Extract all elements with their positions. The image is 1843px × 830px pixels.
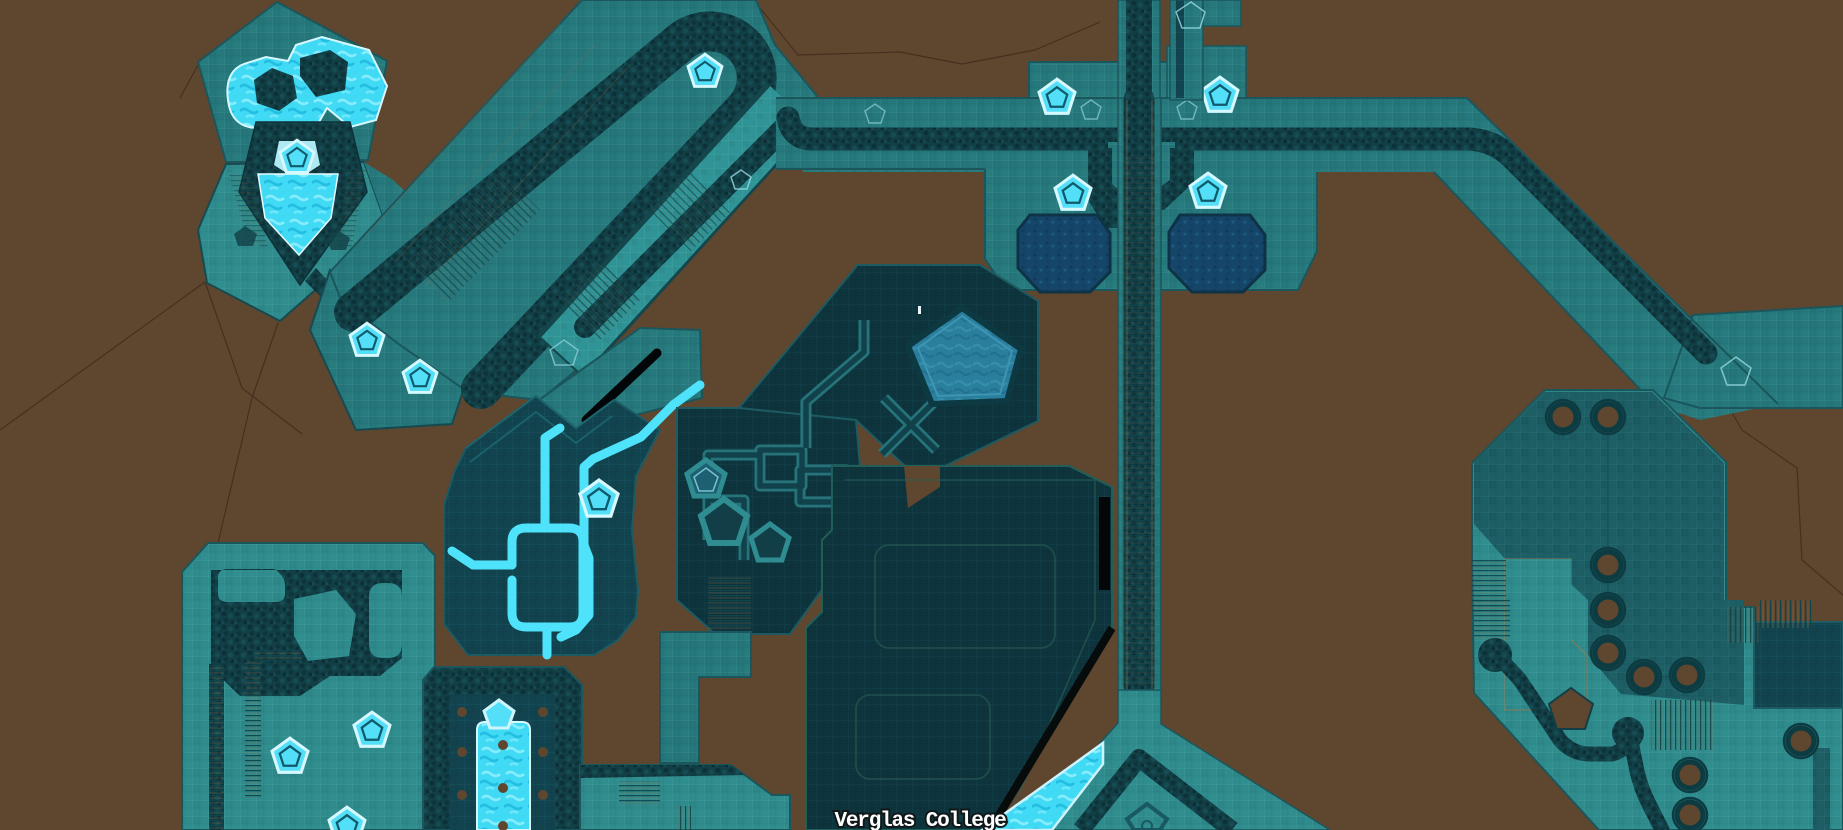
svg-text:Verglas College: Verglas College (834, 810, 1006, 830)
